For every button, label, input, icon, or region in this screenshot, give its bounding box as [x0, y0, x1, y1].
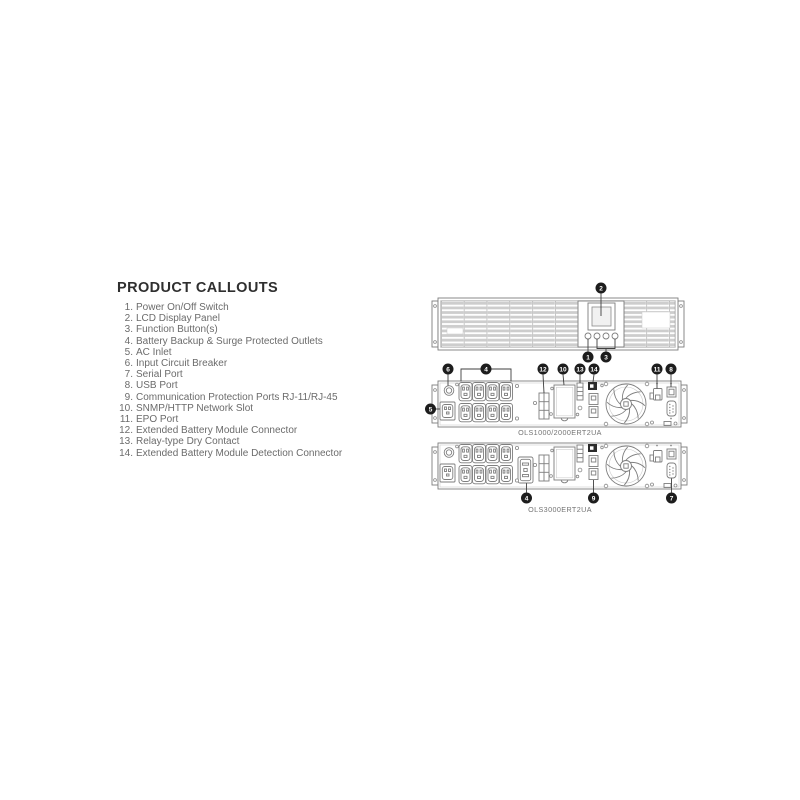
callout-badge-number: 14 — [590, 366, 598, 373]
callout-number: 5. — [117, 347, 133, 358]
function-button — [594, 333, 600, 339]
callout-label: SNMP/HTTP Network Slot — [136, 403, 253, 414]
callout-label: Battery Backup & Surge Protected Outlets — [136, 336, 323, 347]
callout-badge-number: 9 — [592, 495, 596, 502]
callout-number: 1. — [117, 302, 133, 313]
front-view-diagram: 2 1 3 — [425, 280, 695, 364]
callout-badge-number: 6 — [446, 366, 450, 373]
vent-grille-left — [441, 301, 578, 347]
callout-label: Communication Protection Ports RJ-11/RJ-… — [136, 392, 338, 403]
callouts-list-section: PRODUCT CALLOUTS 1.Power On/Off Switch 2… — [117, 280, 427, 459]
callout-number: 12. — [117, 425, 133, 436]
callout-number: 7. — [117, 369, 133, 380]
callout-badge-number: 11 — [654, 366, 661, 373]
product-callouts-page: PRODUCT CALLOUTS 1.Power On/Off Switch 2… — [0, 0, 800, 800]
callout-badge-number: 1 — [586, 354, 590, 361]
usb-port — [667, 449, 676, 459]
callout-number: 8. — [117, 380, 133, 391]
page-title: PRODUCT CALLOUTS — [117, 280, 427, 296]
callout-item: 2.LCD Display Panel — [117, 313, 427, 324]
ebm-detection-connector — [588, 444, 597, 452]
ac-inlet — [440, 464, 455, 482]
circuit-breaker — [444, 386, 454, 396]
callout-number: 10. — [117, 403, 133, 414]
network-slot — [551, 385, 579, 421]
callout-badge-number: 13 — [576, 366, 584, 373]
callouts-list: 1.Power On/Off Switch 2.LCD Display Pane… — [117, 302, 427, 459]
callout-item: 12.Extended Battery Module Connector — [117, 425, 427, 436]
rear-view-ols1000-2000: 5 6 4 12 10 13 14 — [425, 362, 695, 440]
function-button — [612, 333, 618, 339]
callout-label: Relay-type Dry Contact — [136, 436, 239, 447]
serial-port — [667, 463, 676, 478]
callout-badge-number: 2 — [599, 285, 603, 292]
callout-label: Extended Battery Module Connector — [136, 425, 297, 436]
callout-label: USB Port — [136, 380, 178, 391]
callout-item: 3.Function Button(s) — [117, 324, 427, 335]
ac-inlet — [440, 402, 455, 420]
callout-item: 8.USB Port — [117, 380, 427, 391]
model-label: OLS1000/2000ERT2UA — [518, 428, 602, 437]
callout-item: 6.Input Circuit Breaker — [117, 358, 427, 369]
usb-port — [667, 387, 676, 397]
ebm-connector — [539, 455, 549, 481]
callout-badge-number: 8 — [669, 366, 673, 373]
network-slot — [551, 447, 579, 483]
ebm-detection-connector — [588, 382, 597, 390]
callout-number: 9. — [117, 392, 133, 403]
callout-label: AC Inlet — [136, 347, 172, 358]
callout-item: 4.Battery Backup & Surge Protected Outle… — [117, 336, 427, 347]
callout-badge-number: 4 — [484, 366, 488, 373]
callout-number: 11. — [117, 414, 133, 425]
front-chassis — [432, 298, 684, 350]
c19-outlet — [518, 457, 533, 483]
callout-item: 14.Extended Battery Module Detection Con… — [117, 448, 427, 459]
callout-number: 2. — [117, 313, 133, 324]
callout-label: LCD Display Panel — [136, 313, 220, 324]
callout-item: 1.Power On/Off Switch — [117, 302, 427, 313]
callout-badge-number: 3 — [604, 354, 608, 361]
circuit-breaker — [444, 448, 454, 458]
front-label-right — [642, 312, 670, 328]
callout-item: 7.Serial Port — [117, 369, 427, 380]
lcd-screen-inner — [592, 307, 611, 326]
callout-label: Extended Battery Module Detection Connec… — [136, 448, 342, 459]
callout-label: Serial Port — [136, 369, 183, 380]
front-label-small — [447, 328, 463, 334]
function-button — [603, 333, 609, 339]
callout-number: 6. — [117, 358, 133, 369]
callout-badge-number: 5 — [429, 406, 433, 413]
callout-number: 13. — [117, 436, 133, 447]
callout-item: 5.AC Inlet — [117, 347, 427, 358]
callout-label: EPO Port — [136, 414, 178, 425]
callout-badge-number: 12 — [539, 366, 547, 373]
callout-label: Input Circuit Breaker — [136, 358, 227, 369]
callout-item: 13.Relay-type Dry Contact — [117, 436, 427, 447]
callout-number: 3. — [117, 324, 133, 335]
callout-badge-number: 7 — [670, 495, 674, 502]
callout-label: Power On/Off Switch — [136, 302, 229, 313]
serial-port — [667, 401, 676, 416]
callout-badge-number: 10 — [559, 366, 567, 373]
model-label: OLS3000ERT2UA — [528, 505, 592, 514]
power-button — [585, 333, 591, 339]
callout-label: Function Button(s) — [136, 324, 218, 335]
ebm-connector — [539, 393, 549, 419]
callout-badge-number: 4 — [525, 495, 529, 502]
rear-view-ols3000: 4 9 7 OLS3000ERT2UA — [425, 440, 695, 516]
callout-item: 10.SNMP/HTTP Network Slot — [117, 403, 427, 414]
callout-number: 4. — [117, 336, 133, 347]
callout-item: 11.EPO Port — [117, 414, 427, 425]
callout-number: 14. — [117, 448, 133, 459]
callout-item: 9.Communication Protection Ports RJ-11/R… — [117, 392, 427, 403]
